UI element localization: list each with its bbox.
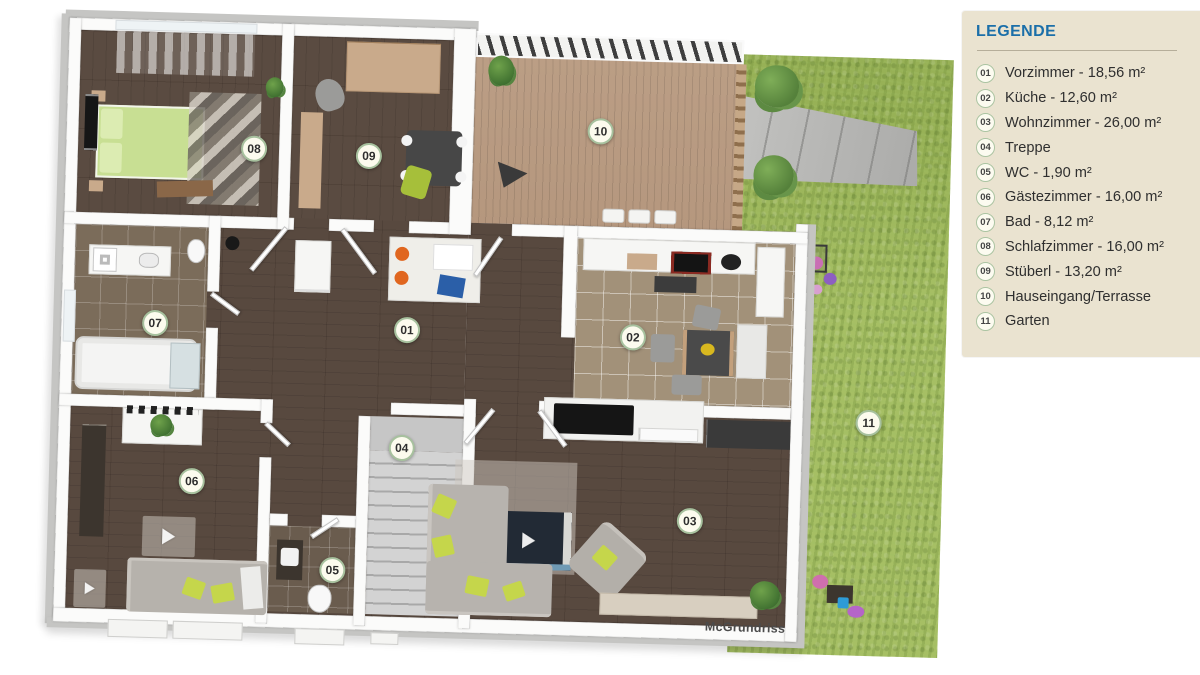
legend-item-label: Schlafzimmer - 16,00 m²: [1005, 239, 1164, 255]
legend-item-label: WC - 1,90 m²: [1005, 165, 1092, 181]
room-marker: 02: [620, 324, 647, 351]
legend-item-number: 10: [976, 287, 995, 306]
room-marker: 03: [676, 508, 703, 535]
legend-item-label: Treppe: [1005, 140, 1051, 156]
legend-item-number: 06: [976, 188, 995, 207]
legend-item-label: Hauseingang/Terrasse: [1005, 289, 1151, 305]
marker-layer: 0102030405060708091011: [32, 5, 962, 675]
legend-item-number: 04: [976, 138, 995, 157]
legend-item-label: Bad - 8,12 m²: [1005, 214, 1093, 230]
legend-item: 04Treppe: [976, 135, 1200, 160]
legend-item: 10Hauseingang/Terrasse: [976, 284, 1200, 309]
legend-panel: LEGENDE 01Vorzimmer - 18,56 m²02Küche - …: [962, 11, 1200, 357]
room-marker: 01: [394, 317, 421, 344]
legend-title: LEGENDE: [976, 23, 1200, 41]
legend-item: 05WC - 1,90 m²: [976, 160, 1200, 185]
legend-items: 01Vorzimmer - 18,56 m²02Küche - 12,60 m²…: [976, 61, 1200, 334]
floorplan-scene: McGrundriss 0102030405060708091011: [32, 5, 962, 675]
legend-item-label: Wohnzimmer - 26,00 m²: [1005, 115, 1161, 131]
legend-item-label: Vorzimmer - 18,56 m²: [1005, 65, 1145, 81]
floorplan-image: McGrundriss 0102030405060708091011 LEGEN…: [0, 0, 1200, 675]
legend-divider: [977, 50, 1177, 51]
room-marker: 06: [178, 468, 205, 495]
legend-item: 01Vorzimmer - 18,56 m²: [976, 61, 1200, 86]
legend-item-number: 01: [976, 64, 995, 83]
room-marker: 05: [319, 557, 346, 584]
room-marker: 07: [142, 310, 169, 337]
legend-item: 09Stüberl - 13,20 m²: [976, 259, 1200, 284]
room-marker: 04: [388, 435, 415, 462]
legend-item: 02Küche - 12,60 m²: [976, 86, 1200, 111]
legend-item-label: Küche - 12,60 m²: [1005, 90, 1117, 106]
legend-item-number: 11: [976, 312, 995, 331]
room-marker: 11: [855, 410, 882, 437]
legend-item: 06Gästezimmer - 16,00 m²: [976, 185, 1200, 210]
legend-item-label: Gästezimmer - 16,00 m²: [1005, 189, 1162, 205]
room-marker: 10: [587, 118, 614, 145]
legend-item-label: Garten: [1005, 313, 1050, 329]
legend-item-number: 07: [976, 213, 995, 232]
room-marker: 09: [356, 143, 383, 170]
legend-item: 08Schlafzimmer - 16,00 m²: [976, 235, 1200, 260]
legend-item-label: Stüberl - 13,20 m²: [1005, 264, 1122, 280]
watermark: McGrundriss: [705, 620, 786, 636]
legend-item: 03Wohnzimmer - 26,00 m²: [976, 111, 1200, 136]
legend-item: 11Garten: [976, 309, 1200, 334]
legend-item-number: 08: [976, 237, 995, 256]
legend-item-number: 05: [976, 163, 995, 182]
legend-item-number: 02: [976, 89, 995, 108]
legend-item-number: 03: [976, 113, 995, 132]
legend-item: 07Bad - 8,12 m²: [976, 210, 1200, 235]
room-marker: 08: [241, 135, 268, 162]
legend-item-number: 09: [976, 262, 995, 281]
